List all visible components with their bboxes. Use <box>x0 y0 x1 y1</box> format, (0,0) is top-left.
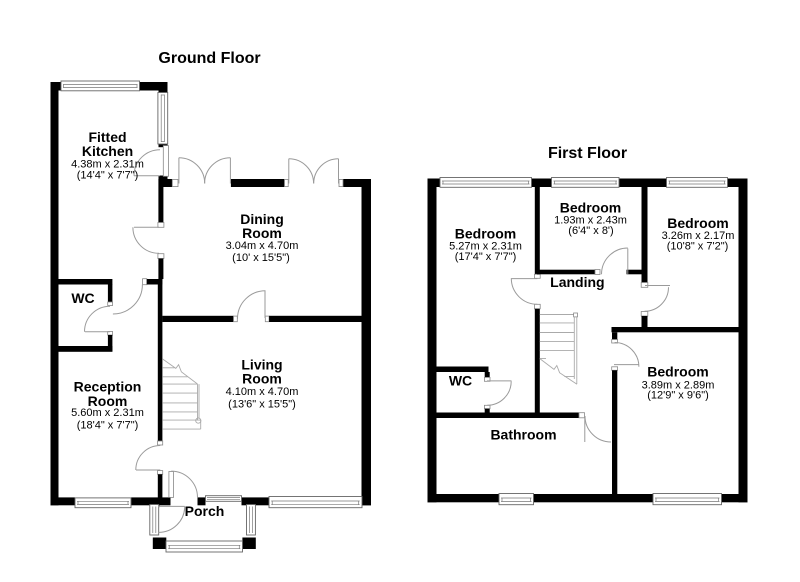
svg-text:First Floor: First Floor <box>548 145 627 162</box>
svg-text:4.10m x 4.70m: 4.10m x 4.70m <box>226 386 299 398</box>
svg-text:Ground Floor: Ground Floor <box>158 50 260 67</box>
svg-text:3.04m x 4.70m: 3.04m x 4.70m <box>226 240 299 252</box>
svg-text:5.60m x 2.31m: 5.60m x 2.31m <box>71 407 144 419</box>
svg-text:WC: WC <box>71 290 94 306</box>
svg-text:(18'4" x 7'7"): (18'4" x 7'7") <box>77 419 139 431</box>
svg-text:Room: Room <box>242 371 282 387</box>
svg-text:(6'4" x 8'): (6'4" x 8') <box>568 225 613 237</box>
svg-text:Bedroom: Bedroom <box>667 215 728 231</box>
svg-text:Room: Room <box>242 225 282 241</box>
svg-text:Bathroom: Bathroom <box>490 427 556 443</box>
svg-text:Bedroom: Bedroom <box>560 200 621 216</box>
svg-text:(10'8" x 7'2"): (10'8" x 7'2") <box>667 240 729 252</box>
svg-text:WC: WC <box>449 373 472 389</box>
svg-text:(14'4" x 7'7"): (14'4" x 7'7") <box>77 169 139 181</box>
svg-text:(10' x 15'5"): (10' x 15'5") <box>232 252 290 264</box>
svg-text:(13'6" x 15'5"): (13'6" x 15'5") <box>228 398 296 410</box>
svg-text:(17'4" x 7'7"): (17'4" x 7'7") <box>455 251 517 263</box>
svg-text:Porch: Porch <box>185 503 225 519</box>
svg-text:Bedroom: Bedroom <box>455 226 516 242</box>
svg-text:Kitchen: Kitchen <box>82 143 133 159</box>
svg-text:(12'9" x 9'6"): (12'9" x 9'6") <box>647 389 709 401</box>
svg-text:Landing: Landing <box>550 274 604 290</box>
svg-text:Bedroom: Bedroom <box>647 364 708 380</box>
